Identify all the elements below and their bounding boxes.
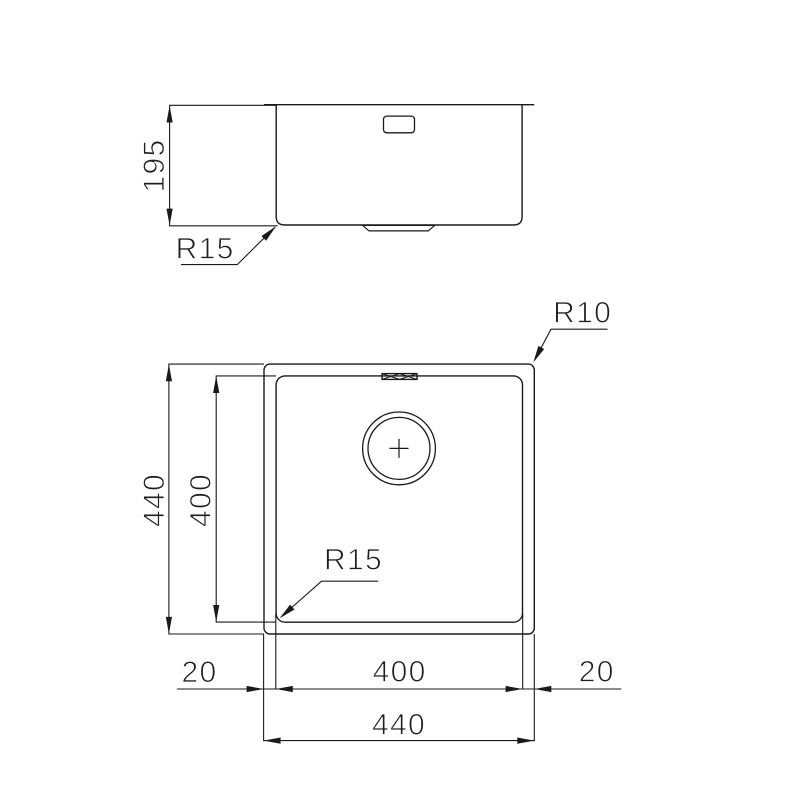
svg-text:R10: R10 (553, 297, 612, 330)
svg-text:400: 400 (184, 473, 217, 527)
svg-text:20: 20 (182, 656, 218, 689)
svg-text:440: 440 (138, 473, 171, 527)
svg-text:R15: R15 (176, 233, 235, 266)
svg-text:440: 440 (372, 708, 426, 741)
svg-text:195: 195 (138, 139, 171, 193)
svg-text:400: 400 (373, 656, 427, 689)
svg-text:R15: R15 (324, 544, 383, 577)
svg-text:20: 20 (579, 656, 615, 689)
